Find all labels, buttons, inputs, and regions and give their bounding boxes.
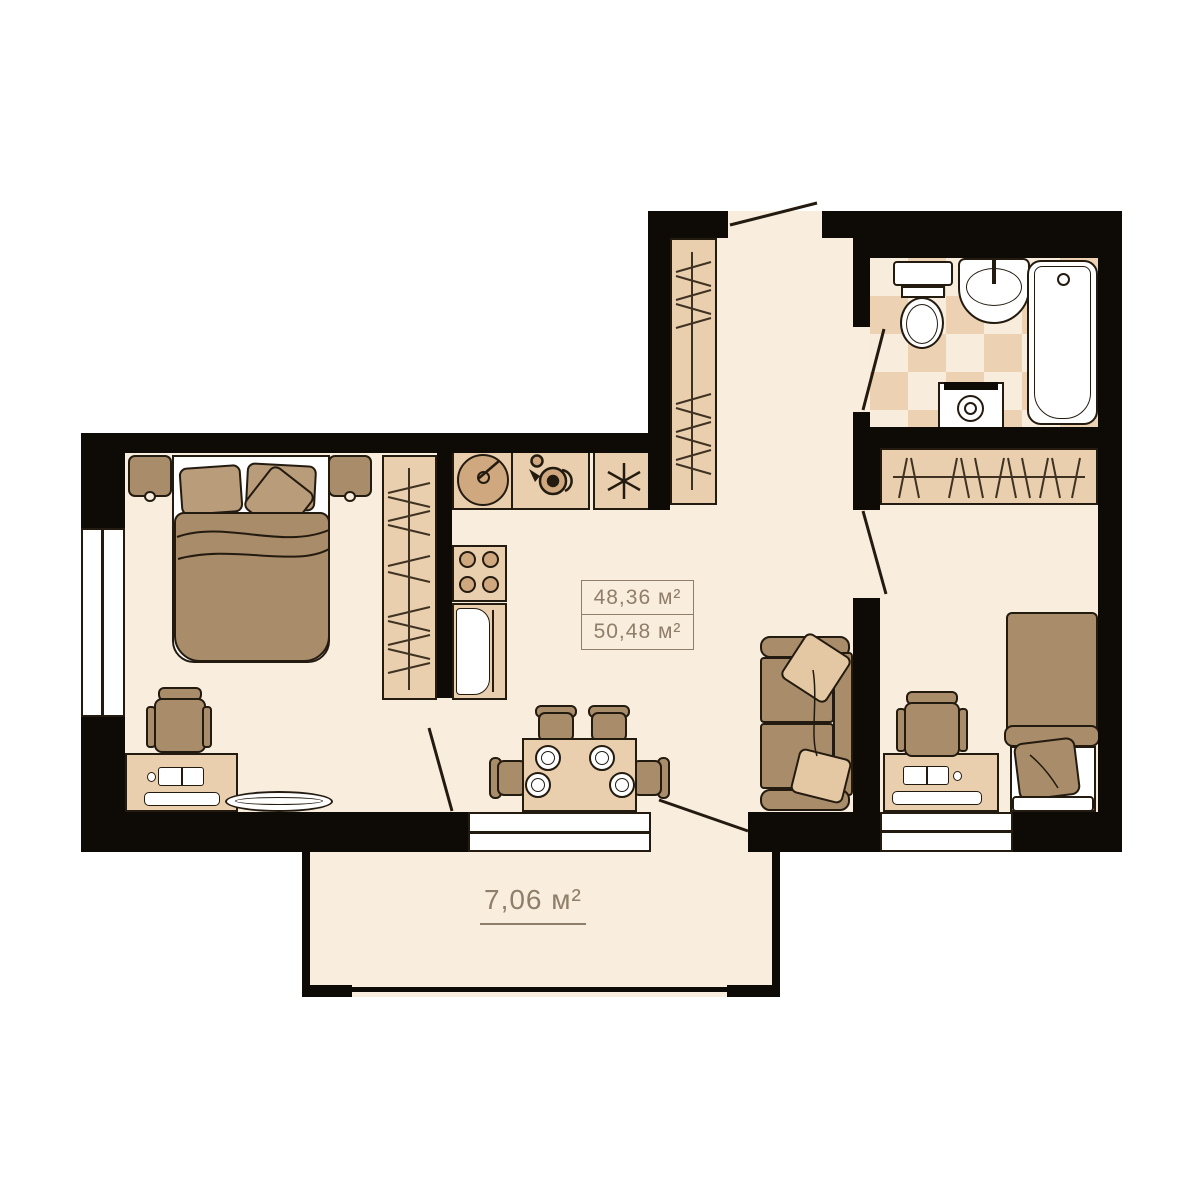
office-chair-bedroom-1 bbox=[154, 698, 206, 753]
bathtub-inner bbox=[1034, 266, 1091, 419]
burner bbox=[482, 551, 499, 568]
chair-armrest bbox=[202, 706, 212, 748]
plate-inner bbox=[615, 778, 629, 792]
chair-armrest bbox=[896, 708, 906, 752]
sink-faucet bbox=[992, 258, 996, 284]
wall-bedroom2-left-lower bbox=[853, 598, 880, 812]
wall-top-main bbox=[81, 433, 655, 453]
wall-bottom-middle bbox=[748, 812, 880, 852]
refrigerator-door bbox=[456, 608, 490, 695]
single-bed-pillow bbox=[1013, 736, 1082, 801]
toilet-icon bbox=[893, 261, 953, 286]
wardrobe-bedroom-1 bbox=[382, 455, 437, 700]
hallway-wardrobe bbox=[670, 238, 717, 505]
washing-machine-door-inner bbox=[964, 402, 977, 415]
wall-right bbox=[1098, 211, 1122, 852]
burner bbox=[459, 551, 476, 568]
bed-pillow bbox=[178, 464, 243, 516]
monitor-icon bbox=[144, 792, 220, 806]
balcony-wall-left bbox=[302, 852, 310, 997]
window-frame-line bbox=[882, 830, 1011, 833]
mouse-icon bbox=[953, 771, 962, 781]
area-label-box: 48,36 м² 50,48 м² bbox=[581, 580, 694, 650]
refrigerator-handle bbox=[492, 610, 494, 692]
wall-bottom-right bbox=[1013, 812, 1122, 852]
mouse-icon bbox=[147, 772, 156, 782]
area-label-row-1: 48,36 м² bbox=[582, 581, 693, 615]
wall-hallway-top-right bbox=[822, 211, 855, 238]
balcony-parapet bbox=[348, 987, 731, 992]
keyboard-divider bbox=[926, 767, 928, 784]
wardrobe-bedroom-2 bbox=[880, 448, 1098, 505]
wall-bathroom-bottom bbox=[853, 427, 1098, 448]
wall-bathroom-left-upper bbox=[853, 238, 870, 327]
window-bedroom-2 bbox=[880, 812, 1013, 852]
kitchen-counter-fridge-marker bbox=[593, 450, 655, 510]
wall-hallway-left bbox=[648, 211, 670, 510]
chair-armrest bbox=[958, 708, 968, 752]
bed-blanket bbox=[174, 512, 330, 662]
window-bedroom-1 bbox=[81, 528, 125, 717]
burner bbox=[482, 576, 499, 593]
washing-machine-top bbox=[944, 382, 998, 390]
monitor-icon bbox=[892, 791, 982, 805]
balcony-wall-bottom-left bbox=[302, 985, 352, 997]
sink-drain bbox=[477, 471, 490, 484]
balcony-wall-bottom-right bbox=[727, 985, 780, 997]
chair-armrest bbox=[146, 706, 156, 748]
counter-seam bbox=[511, 452, 513, 508]
balcony-area-label: 7,06 м² bbox=[480, 884, 586, 925]
nightstand-knob bbox=[344, 491, 356, 502]
balcony-wall-right bbox=[772, 852, 780, 997]
floor-plan-canvas: { "labels": { "room_area_line1": "48,36 … bbox=[0, 0, 1200, 1200]
wall-bedroom2-left-upper bbox=[853, 448, 880, 510]
balcony-door-window bbox=[468, 812, 651, 852]
bathtub-drain bbox=[1057, 273, 1070, 286]
window-frame-line bbox=[470, 831, 649, 834]
keyboard-divider bbox=[181, 768, 183, 785]
burner bbox=[459, 576, 476, 593]
wall-bedroom1-kitchen bbox=[437, 433, 452, 698]
wall-bathroom-top bbox=[855, 211, 1122, 258]
decor-plate-inner bbox=[235, 797, 323, 805]
plate-inner bbox=[595, 751, 609, 765]
office-chair-bedroom-2 bbox=[904, 702, 960, 757]
window-frame-line bbox=[101, 530, 104, 715]
area-label-row-2: 50,48 м² bbox=[582, 615, 693, 649]
toilet-bowl-inner bbox=[906, 304, 938, 344]
wall-bottom-left bbox=[81, 812, 468, 852]
plate-inner bbox=[541, 751, 555, 765]
wall-hallway-top-left bbox=[648, 211, 728, 238]
plate-inner bbox=[531, 778, 545, 792]
nightstand-knob bbox=[144, 491, 156, 502]
single-bed-footboard bbox=[1012, 796, 1094, 812]
